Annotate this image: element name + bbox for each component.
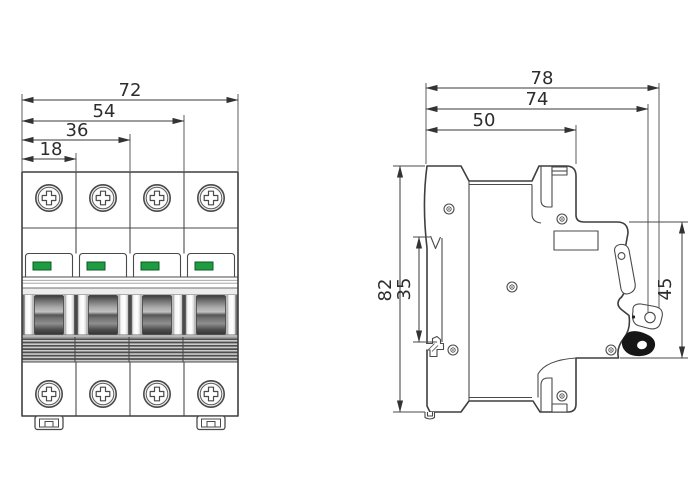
dim-label-78: 78 (531, 68, 554, 89)
lever-pivot-dot (632, 315, 635, 318)
dim-label-50: 50 (473, 110, 496, 131)
status-indicator-window (87, 262, 105, 270)
toggle-handle-band (22, 295, 238, 335)
terminal-screw (198, 185, 224, 211)
toggle-handle (197, 296, 226, 335)
din-clip (35, 416, 63, 430)
terminal-screw (36, 185, 62, 211)
terminal-screw (90, 381, 116, 407)
rivet (557, 214, 567, 224)
rivet (606, 345, 616, 355)
front-view: 72 54 36 18 (22, 80, 238, 430)
rivet (448, 345, 458, 355)
dimension-36: 36 (22, 120, 130, 141)
dimension-54: 54 (22, 101, 184, 122)
rivet (444, 204, 454, 214)
vent-stripe-band (22, 337, 238, 362)
dimension-50: 50 (426, 110, 576, 131)
dim-label-35: 35 (394, 278, 415, 301)
terminal-screw (144, 381, 170, 407)
toggle-handle (143, 296, 172, 335)
dim-label-36: 36 (66, 120, 89, 141)
din-clip (197, 416, 225, 430)
dim-label-45: 45 (655, 278, 676, 301)
status-indicator-window (141, 262, 159, 270)
front-barrier-block (554, 231, 598, 250)
circuit-breaker-drawing: 72 54 36 18 (0, 0, 700, 500)
toggle-handle (35, 296, 64, 335)
breaker-side-body (424, 166, 629, 412)
rivet (507, 282, 517, 292)
front-dimensions: 72 54 36 18 (22, 80, 238, 171)
technical-drawing-page: 72 54 36 18 (0, 0, 700, 500)
terminal-screw (90, 185, 116, 211)
dimension-74: 74 (426, 89, 648, 110)
terminal-screw (198, 381, 224, 407)
dim-label-72: 72 (119, 80, 142, 101)
dimension-78: 78 (426, 68, 659, 89)
dimension-72: 72 (22, 80, 238, 101)
dimension-35: 35 (394, 237, 419, 342)
dimension-18: 18 (22, 139, 76, 160)
dim-label-54: 54 (93, 101, 116, 122)
status-indicator-window (195, 262, 213, 270)
clip-pull-tab (425, 412, 435, 419)
dim-label-74: 74 (526, 89, 549, 110)
toggle-handle (89, 296, 118, 335)
side-view: 78 74 50 82 35 45 (375, 68, 688, 419)
dim-label-18: 18 (40, 139, 63, 160)
terminal-screw (36, 381, 62, 407)
lever-knob (633, 304, 663, 329)
dim-label-82: 82 (375, 279, 396, 302)
rivet (557, 391, 567, 401)
terminal-screw (144, 185, 170, 211)
status-indicator-window (33, 262, 51, 270)
